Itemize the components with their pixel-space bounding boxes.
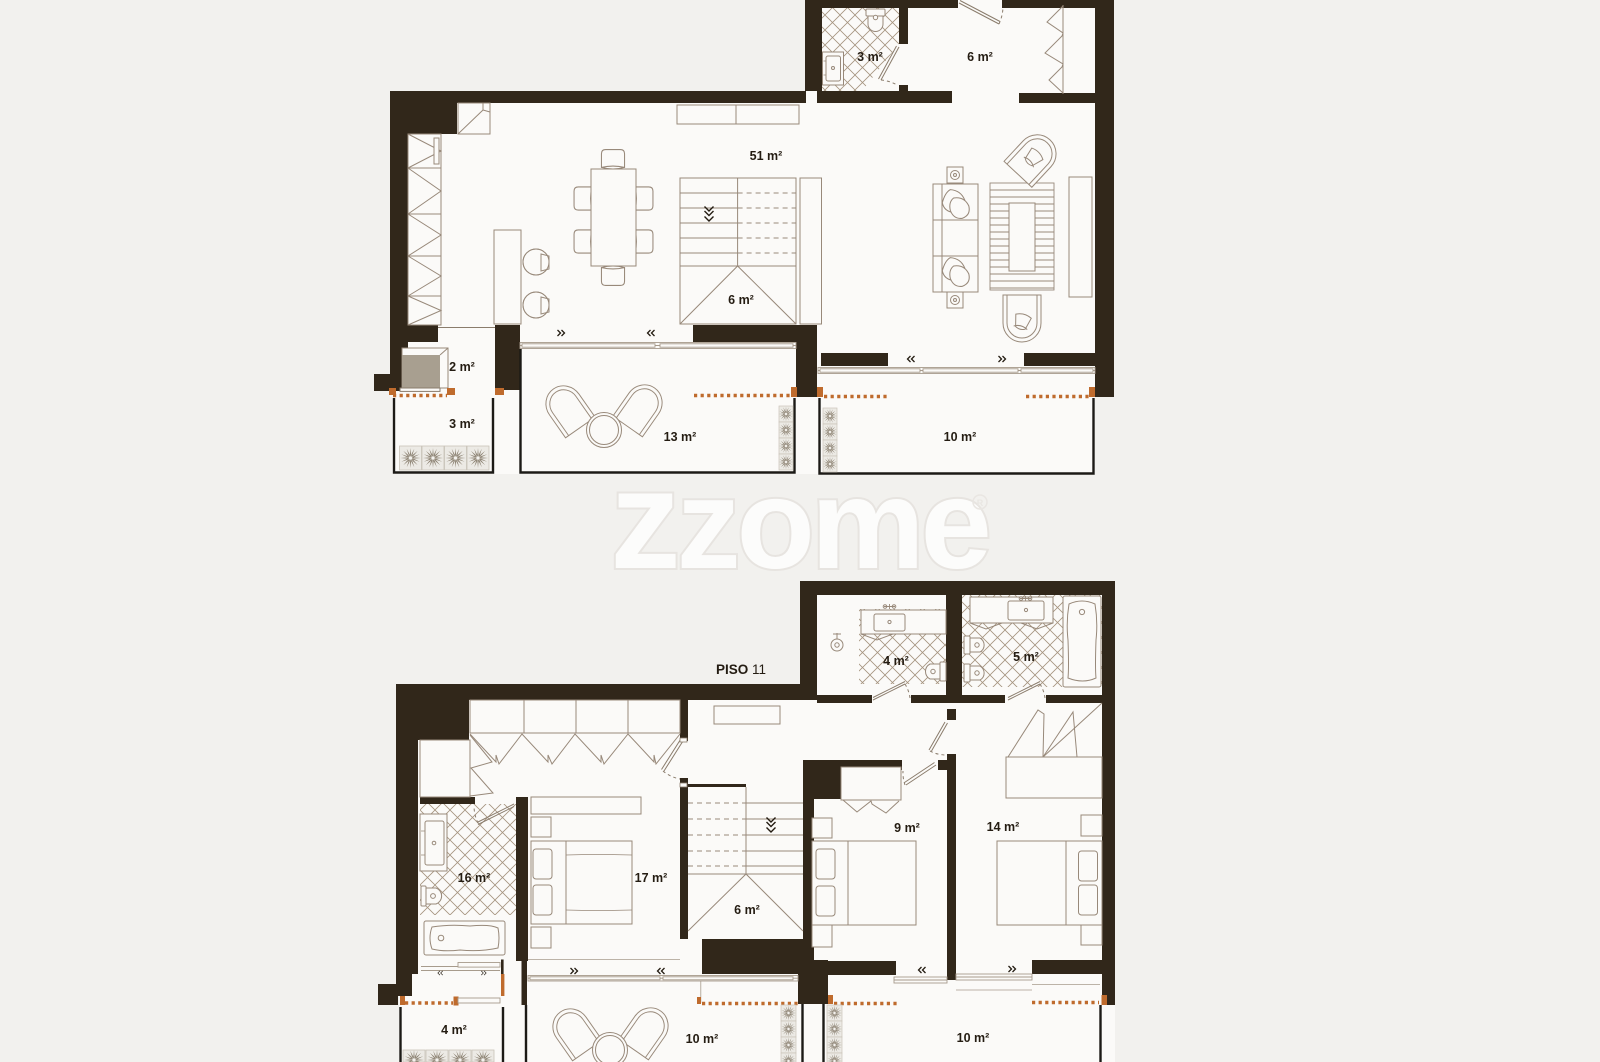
svg-text:10 m²: 10 m² xyxy=(957,1031,990,1045)
svg-text:6 m²: 6 m² xyxy=(728,293,754,307)
svg-text:R: R xyxy=(977,498,984,508)
svg-text:14 m²: 14 m² xyxy=(987,820,1020,834)
svg-text:9 m²: 9 m² xyxy=(894,821,920,835)
svg-text:5 m²: 5 m² xyxy=(1013,650,1039,664)
svg-text:13 m²: 13 m² xyxy=(664,430,697,444)
svg-text:6 m²: 6 m² xyxy=(734,903,760,917)
svg-text:4 m²: 4 m² xyxy=(883,654,909,668)
svg-text:10 m²: 10 m² xyxy=(686,1032,719,1046)
svg-text:10 m²: 10 m² xyxy=(944,430,977,444)
svg-text:3 m²: 3 m² xyxy=(449,417,475,431)
svg-text:6 m²: 6 m² xyxy=(967,50,993,64)
svg-text:3 m²: 3 m² xyxy=(857,50,883,64)
svg-text:2 m²: 2 m² xyxy=(449,360,475,374)
svg-text:16 m²: 16 m² xyxy=(458,871,491,885)
svg-text:PISO 11: PISO 11 xyxy=(716,662,766,677)
svg-text:zzome: zzome xyxy=(610,440,988,598)
svg-text:51 m²: 51 m² xyxy=(750,149,783,163)
svg-text:4 m²: 4 m² xyxy=(441,1023,467,1037)
svg-text:17 m²: 17 m² xyxy=(635,871,668,885)
